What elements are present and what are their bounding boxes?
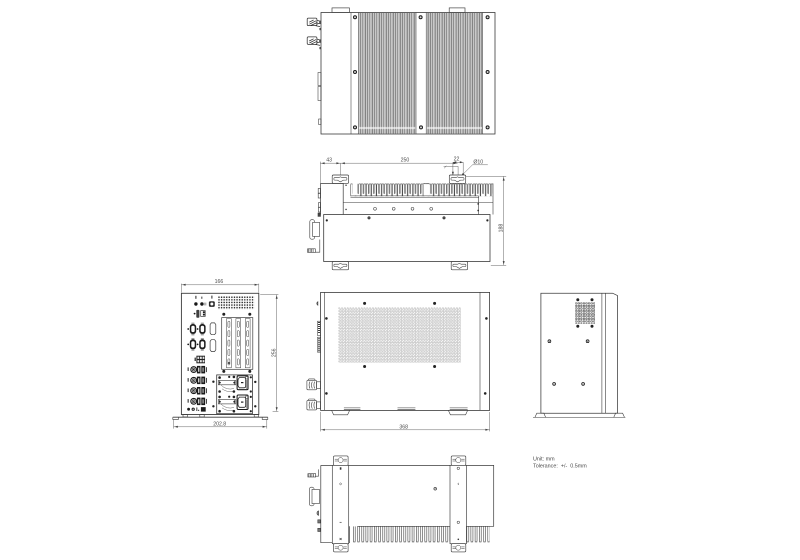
svg-text:166: 166 [215, 279, 224, 285]
svg-text:22: 22 [454, 157, 460, 163]
svg-text:250: 250 [401, 158, 410, 164]
svg-text:43: 43 [326, 158, 332, 164]
svg-text:Unit: mm: Unit: mm [533, 457, 555, 463]
svg-text:202.8: 202.8 [213, 421, 226, 427]
svg-text:Ø10: Ø10 [473, 160, 483, 166]
svg-text:Tolerance: +/- 0.5mm: Tolerance: +/- 0.5mm [533, 464, 587, 470]
svg-text:188: 188 [499, 224, 505, 233]
svg-text:256: 256 [272, 348, 278, 357]
svg-text:368: 368 [399, 424, 408, 430]
